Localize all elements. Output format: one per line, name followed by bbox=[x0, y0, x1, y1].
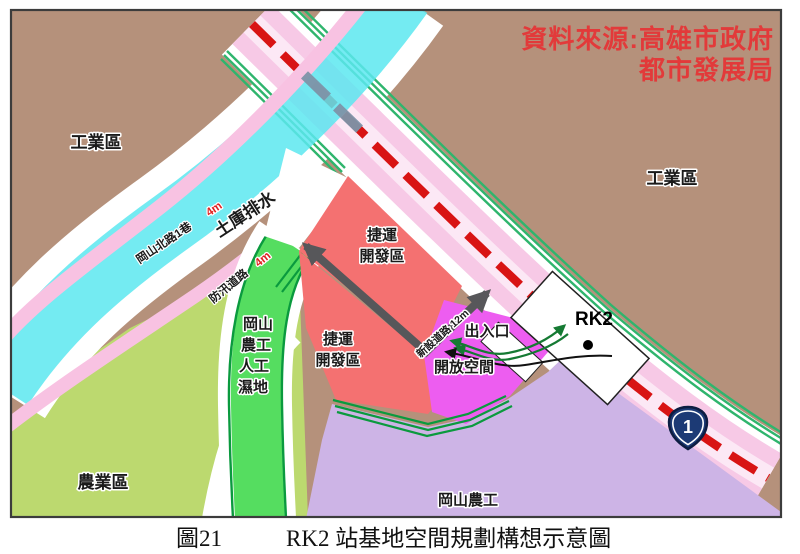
label-industrial-left: 工業區 bbox=[71, 132, 122, 152]
label-wetland-line: 人工 bbox=[239, 358, 269, 375]
label-mrt-line: 開發區 bbox=[315, 351, 360, 369]
caption-number: 圖21 bbox=[176, 526, 222, 551]
figure-rk2-station-plan: 1 工業區 工業區 農業區 岡山農工 岡山 農工 人工 濕地 捷運 開發區 捷運… bbox=[0, 0, 800, 554]
source-credit-line1: 資料來源:高雄市政府 bbox=[521, 24, 774, 54]
label-station-rk2: RK2 bbox=[575, 309, 613, 330]
label-wetland-line: 濕地 bbox=[238, 378, 268, 396]
label-mrt-line: 捷運 bbox=[323, 330, 354, 348]
label-open-space: 開放空間 bbox=[434, 358, 494, 376]
label-wetland-line: 岡山 bbox=[243, 316, 273, 333]
source-credit-line2: 都市發展局 bbox=[638, 55, 774, 85]
caption-title: RK2 站基地空間規劃構想示意圖 bbox=[286, 526, 611, 551]
figure-caption: 圖21 RK2 站基地空間規劃構想示意圖 bbox=[176, 526, 611, 551]
label-school: 岡山農工 bbox=[438, 491, 498, 509]
label-entrance: 出入口 bbox=[464, 322, 509, 340]
station-dot bbox=[583, 340, 593, 350]
label-mrt-line: 開發區 bbox=[359, 247, 404, 265]
plan-map-canvas: 1 工業區 工業區 農業區 岡山農工 岡山 農工 人工 濕地 捷運 開發區 捷運… bbox=[0, 0, 800, 554]
label-agricultural: 農業區 bbox=[78, 472, 129, 492]
label-mrt-line: 捷運 bbox=[367, 226, 398, 244]
label-wetland-line: 農工 bbox=[241, 336, 271, 354]
highway-number: 1 bbox=[683, 417, 693, 437]
label-industrial-right: 工業區 bbox=[647, 168, 698, 188]
